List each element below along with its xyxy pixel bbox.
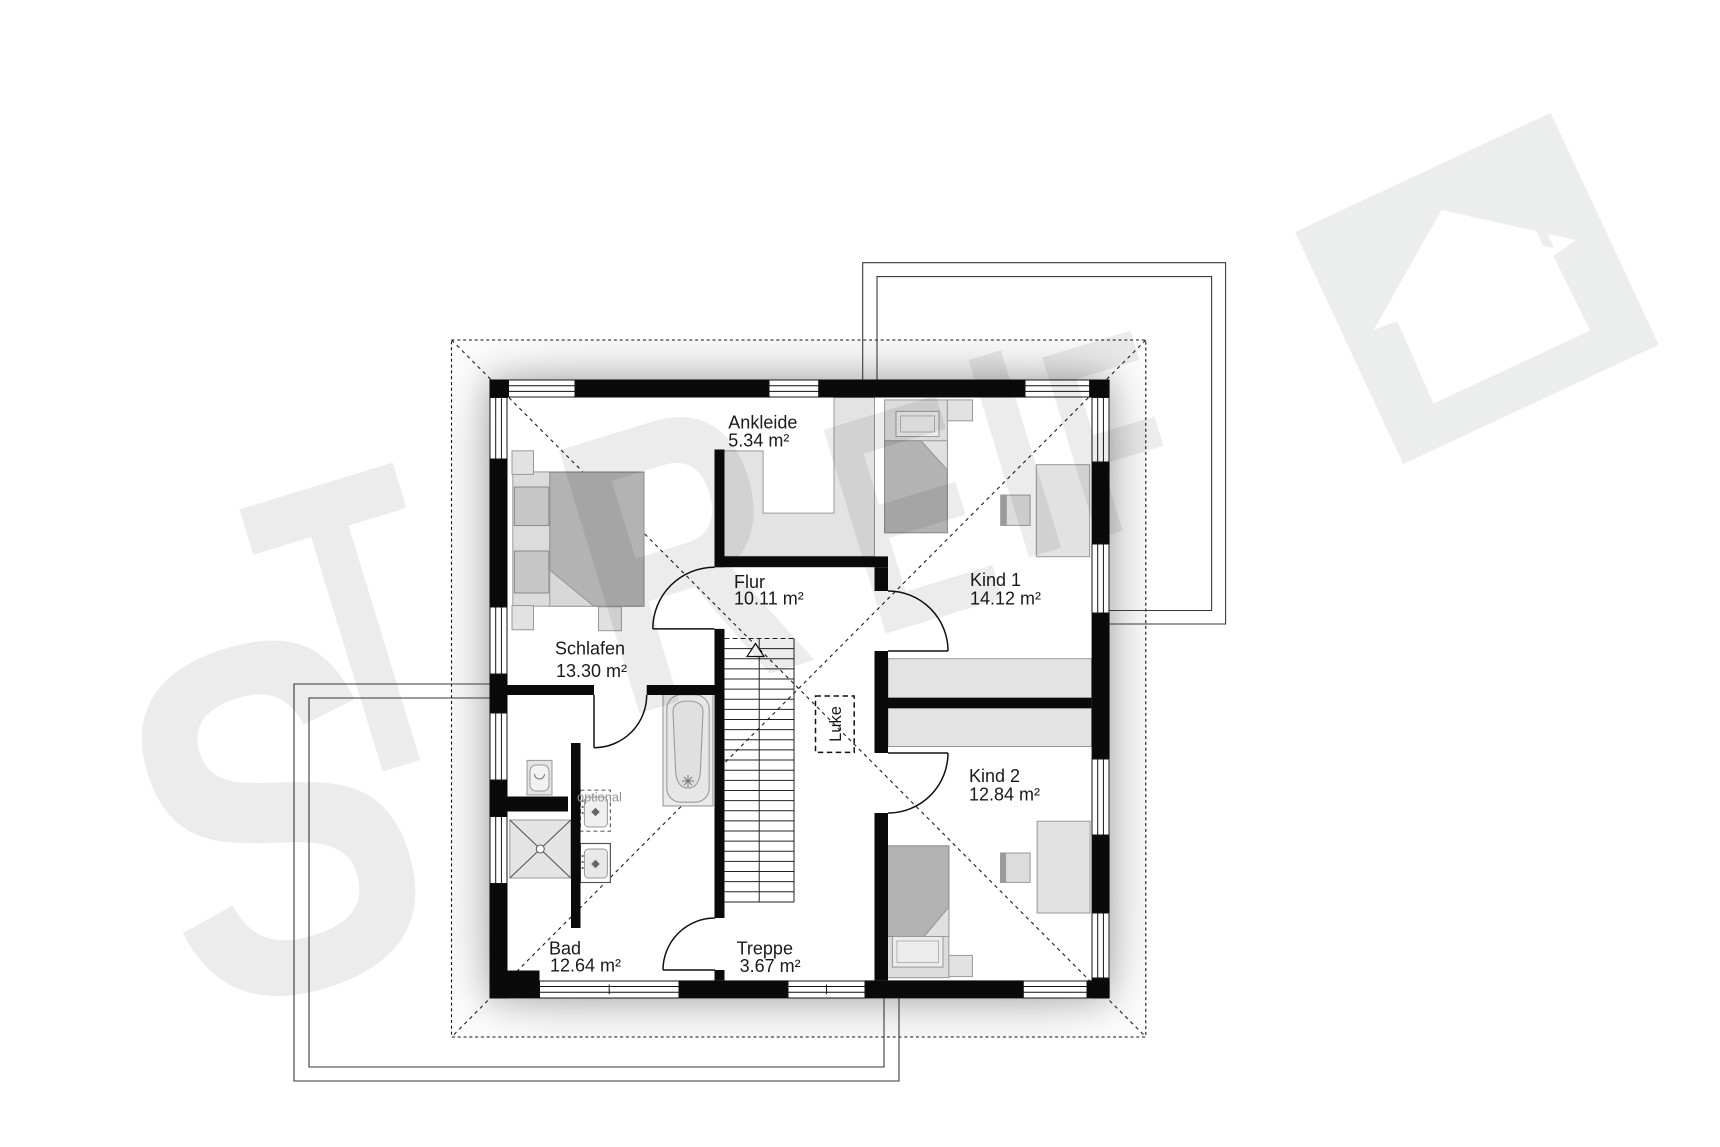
svg-text:3.67 m²: 3.67 m² <box>740 956 801 976</box>
svg-text:optional: optional <box>577 790 622 805</box>
svg-text:Kind 2: Kind 2 <box>969 766 1020 786</box>
svg-text:12.84 m²: 12.84 m² <box>969 785 1040 805</box>
svg-text:12.64 m²: 12.64 m² <box>550 956 621 976</box>
